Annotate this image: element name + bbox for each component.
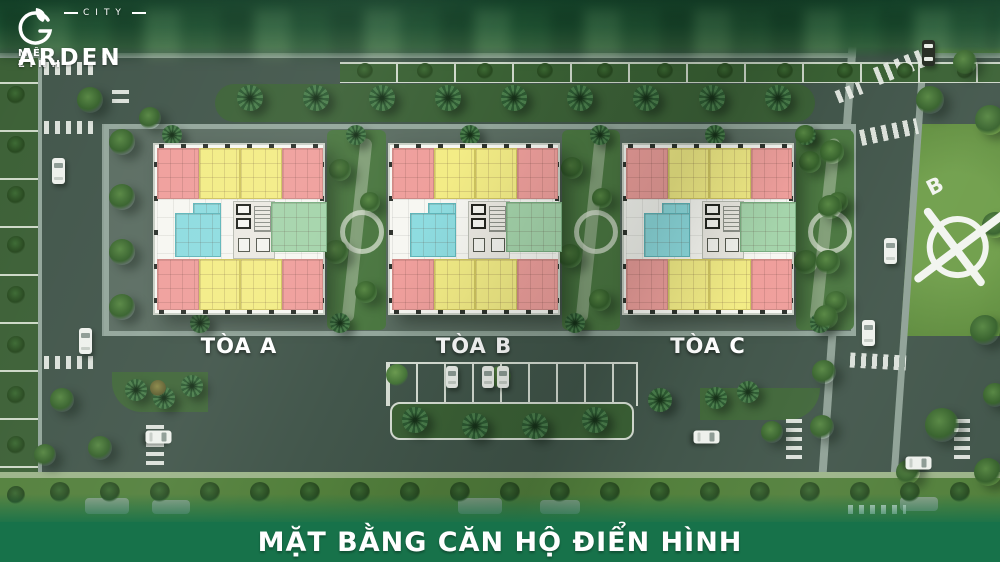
- tree-icon: [88, 436, 112, 460]
- elevator: [705, 204, 720, 215]
- car: [906, 457, 932, 470]
- palm-tree-icon: [765, 85, 791, 111]
- tree-icon: [837, 63, 853, 79]
- car: [497, 366, 509, 388]
- tower-a-label: TÒA A: [159, 334, 319, 358]
- stairs: [723, 206, 740, 232]
- tree-icon: [777, 63, 793, 79]
- tree-icon: [7, 286, 25, 304]
- palm-tree-icon: [705, 387, 727, 409]
- crosswalk: [850, 353, 907, 371]
- palm-tree-icon: [648, 388, 672, 412]
- stairs: [489, 206, 506, 232]
- car: [694, 431, 720, 444]
- apartment-unit-pink: [282, 148, 323, 199]
- tree-icon: [109, 129, 135, 155]
- car: [446, 366, 458, 388]
- logo-dash: [64, 12, 78, 14]
- tree-icon: [139, 107, 161, 129]
- tree-icon: [761, 421, 783, 443]
- tree-icon: [592, 188, 612, 208]
- palm-tree-icon: [699, 85, 725, 111]
- apartment-unit-pink: [392, 259, 434, 310]
- logo-g-leaf-icon: [14, 6, 56, 48]
- palm-tree-icon: [162, 125, 182, 145]
- tree-icon: [150, 380, 166, 396]
- apartment-unit-yellow: [709, 259, 751, 310]
- palm-tree-icon: [582, 407, 608, 433]
- crosswalk: [44, 121, 98, 134]
- service-room: [473, 238, 485, 252]
- tree-icon: [589, 289, 611, 311]
- palm-tree-icon: [590, 125, 610, 145]
- elevator: [471, 204, 486, 215]
- tree-icon: [324, 240, 348, 264]
- apartment-unit-green: [271, 202, 327, 252]
- apartment-unit-teal: [410, 213, 456, 257]
- title-banner: MẶT BẰNG CĂN HỘ ĐIỂN HÌNH: [0, 522, 1000, 562]
- tree-icon: [717, 63, 733, 79]
- service-room: [491, 238, 505, 252]
- tree-icon: [7, 86, 25, 104]
- apartment-unit-yellow: [434, 148, 475, 199]
- logo-dash: [132, 12, 146, 14]
- tree-icon: [109, 184, 135, 210]
- wall-ticks: [159, 310, 319, 314]
- apartment-unit-yellow: [709, 148, 751, 199]
- service-room: [256, 238, 270, 252]
- logo-line2: ARDEN: [18, 48, 123, 69]
- apartment-unit-yellow: [240, 259, 282, 310]
- tree-icon: [386, 364, 408, 386]
- wall-ticks: [394, 310, 554, 314]
- tree-icon: [360, 192, 380, 212]
- apartment-unit-teal: [175, 213, 221, 257]
- tree-icon: [816, 250, 840, 274]
- apartment-unit-yellow: [475, 259, 517, 310]
- palm-tree-icon: [237, 85, 263, 111]
- tree-icon: [109, 239, 135, 265]
- tower-b-label: TÒA B: [394, 334, 554, 358]
- tree-icon: [7, 336, 25, 354]
- tree-icon: [561, 157, 583, 179]
- tree-icon: [916, 86, 944, 114]
- car: [52, 158, 65, 184]
- tree-icon: [7, 436, 25, 454]
- wall-ticks: [628, 310, 788, 314]
- building-b-floorplan: [388, 143, 560, 315]
- palm-tree-icon: [567, 85, 593, 111]
- tree-icon: [7, 386, 25, 404]
- parking-stalls: [386, 362, 638, 406]
- elevator-core: [468, 201, 510, 259]
- banner-fade: [0, 494, 1000, 524]
- palm-tree-icon: [369, 85, 395, 111]
- tree-icon: [897, 63, 913, 79]
- car: [884, 238, 897, 264]
- tree-icon: [7, 236, 25, 254]
- service-room: [238, 238, 250, 252]
- tower-c-label: TÒA C: [628, 334, 788, 358]
- tree-icon: [953, 50, 977, 74]
- building-a-floorplan: [153, 143, 325, 315]
- apartment-unit-pink: [157, 148, 199, 199]
- apartment-unit-yellow: [475, 148, 517, 199]
- tree-icon: [597, 63, 613, 79]
- palm-tree-icon: [402, 407, 428, 433]
- apartment-unit-pink: [626, 259, 668, 310]
- crosswalk: [44, 356, 98, 369]
- elevator-core: [702, 201, 744, 259]
- service-room: [707, 238, 719, 252]
- elevator: [236, 204, 251, 215]
- apartment-unit-green: [740, 202, 796, 252]
- car: [862, 320, 875, 346]
- page-title: MẶT BẰNG CĂN HỘ ĐIỂN HÌNH: [258, 527, 743, 558]
- apartment-unit-yellow: [240, 148, 282, 199]
- tree-icon: [812, 360, 836, 384]
- palm-tree-icon: [330, 313, 350, 333]
- stairs: [254, 206, 271, 232]
- apartment-unit-pink: [517, 148, 558, 199]
- logo-line3: CITY: [64, 8, 146, 18]
- elevator: [236, 218, 251, 229]
- tree-icon: [983, 383, 1000, 407]
- palm-tree-icon: [346, 125, 366, 145]
- palm-tree-icon: [435, 85, 461, 111]
- tree-icon: [970, 315, 1000, 345]
- tree-icon: [794, 250, 818, 274]
- tree-icon: [7, 136, 25, 154]
- apartment-unit-pink: [751, 259, 792, 310]
- tree-icon: [657, 63, 673, 79]
- compass-north-icon: B: [905, 176, 1000, 300]
- tree-icon: [77, 87, 103, 113]
- palm-tree-icon: [125, 379, 147, 401]
- tree-icon: [799, 151, 821, 173]
- service-room: [725, 238, 739, 252]
- apartment-unit-teal: [644, 213, 690, 257]
- tree-icon: [810, 415, 834, 439]
- apartment-unit-yellow: [199, 148, 240, 199]
- tree-icon: [34, 444, 56, 466]
- crosswalk: [786, 419, 802, 459]
- car: [482, 366, 494, 388]
- palm-tree-icon: [190, 313, 210, 333]
- palm-tree-icon: [737, 381, 759, 403]
- palm-tree-icon: [462, 413, 488, 439]
- tree-icon: [814, 305, 838, 329]
- tree-icon: [818, 195, 842, 219]
- apartment-unit-pink: [626, 148, 668, 199]
- tree-icon: [355, 281, 377, 303]
- tree-icon: [329, 159, 351, 181]
- palm-tree-icon: [460, 125, 480, 145]
- logo-city-text: CITY: [83, 8, 127, 18]
- palm-tree-icon: [705, 125, 725, 145]
- palm-tree-icon: [522, 413, 548, 439]
- tree-icon: [975, 105, 1000, 135]
- elevator: [705, 218, 720, 229]
- apartment-unit-pink: [392, 148, 434, 199]
- apartment-unit-pink: [157, 259, 199, 310]
- elevator-core: [233, 201, 275, 259]
- tree-icon: [974, 458, 1000, 486]
- car: [146, 431, 172, 444]
- site-plan: TÒA A TÒA B TÒA C B MÊ LINH ARDEN CITY M…: [0, 0, 1000, 562]
- car: [922, 40, 935, 66]
- tree-icon: [7, 186, 25, 204]
- apartment-unit-yellow: [199, 259, 240, 310]
- crosswalk: [112, 85, 129, 103]
- apartment-unit-pink: [282, 259, 323, 310]
- apartment-unit-green: [506, 202, 562, 252]
- palm-tree-icon: [565, 313, 585, 333]
- tree-icon: [820, 140, 844, 164]
- tree-icon: [109, 294, 135, 320]
- palm-tree-icon: [633, 85, 659, 111]
- elevator: [471, 218, 486, 229]
- apartment-unit-pink: [751, 148, 792, 199]
- car: [79, 328, 92, 354]
- apartment-unit-yellow: [668, 148, 709, 199]
- palm-tree-icon: [501, 85, 527, 111]
- palm-tree-icon: [181, 375, 203, 397]
- tree-icon: [537, 63, 553, 79]
- blurred-treeline: [0, 0, 1000, 58]
- apartment-unit-yellow: [434, 259, 475, 310]
- tree-icon: [50, 388, 74, 412]
- apartment-unit-yellow: [668, 259, 709, 310]
- tree-icon: [795, 125, 815, 145]
- tree-icon: [477, 63, 493, 79]
- tree-icon: [357, 63, 373, 79]
- tree-icon: [925, 408, 959, 442]
- apartment-unit-pink: [517, 259, 558, 310]
- tree-icon: [417, 63, 433, 79]
- building-c-floorplan: [622, 143, 794, 315]
- palm-tree-icon: [303, 85, 329, 111]
